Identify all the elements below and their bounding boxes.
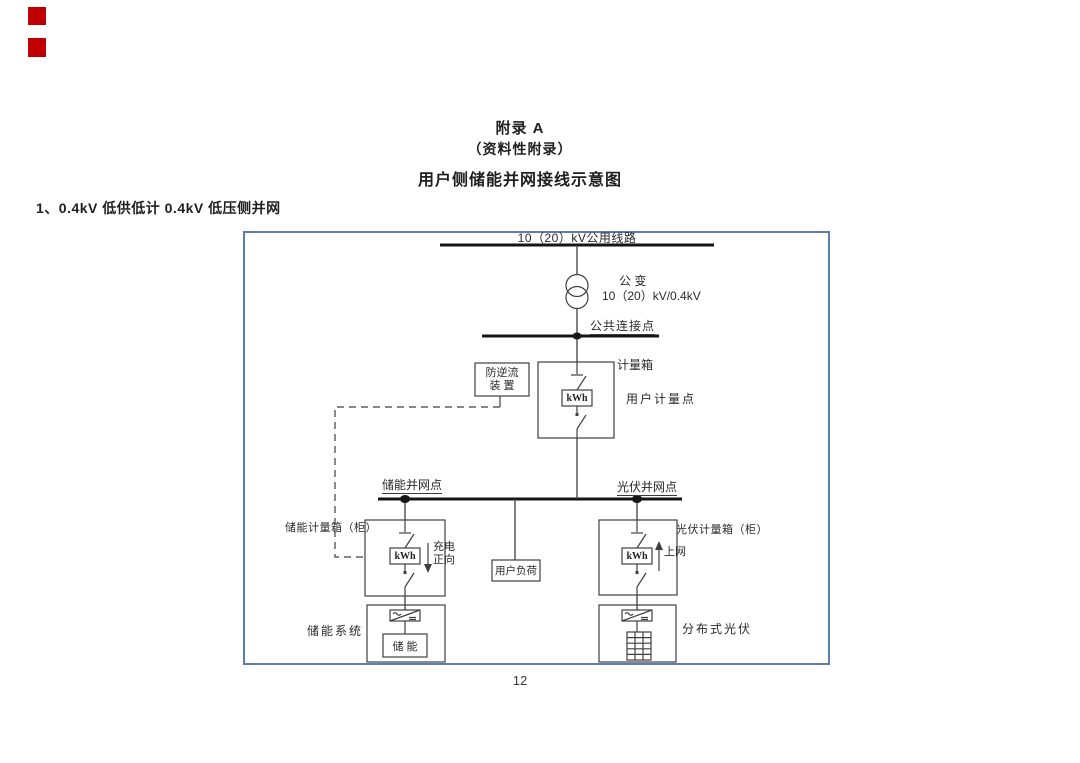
page-title: 用户侧储能并网接线示意图 xyxy=(0,166,1040,190)
top-bus-label: 10（20）kV公用线路 xyxy=(477,231,677,245)
kwh-meter-label: kWh xyxy=(562,390,592,406)
breaker-icon xyxy=(577,415,586,429)
user-load-label: 用户负荷 xyxy=(492,560,540,581)
anti-backflow-line2: 装 置 xyxy=(489,380,514,392)
breaker-icon xyxy=(637,534,646,548)
transformer-ratio-label: 10（20）kV/0.4kV xyxy=(602,289,701,303)
breaker-icon xyxy=(405,573,414,587)
breaker-icon xyxy=(405,534,414,548)
charge-dir-line2: 正向 xyxy=(433,554,455,566)
storage-poc-dot xyxy=(400,495,410,503)
inverter-icon xyxy=(622,610,652,621)
storage-system-label: 储能系统 xyxy=(307,624,363,638)
storage-unit-label: 储 能 xyxy=(383,634,427,657)
to-grid-label: 上网 xyxy=(664,545,686,559)
pv-poc-label: 光伏并网点 xyxy=(617,480,677,496)
pv-poc-dot xyxy=(632,495,642,503)
inverter-icon xyxy=(390,610,420,621)
red-marker-top xyxy=(28,7,46,25)
red-marker-bottom xyxy=(28,38,46,57)
charge-direction-label: 充电正向 xyxy=(433,541,455,567)
pv-meter-box-label: 光伏计量箱（柜） xyxy=(676,523,768,537)
wiring-diagram xyxy=(245,233,828,663)
appendix-heading: 附录 A xyxy=(0,117,1040,138)
user-meter-point-label: 用户计量点 xyxy=(626,392,696,406)
transformer-icon xyxy=(566,275,588,309)
to-grid-arrow-icon xyxy=(655,541,663,571)
breaker-icon xyxy=(637,573,646,587)
kwh-meter-label: kWh xyxy=(390,548,420,564)
diagram-frame: 10（20）kV公用线路 公 变 10（20）kV/0.4kV 公共连接点 防逆… xyxy=(243,231,830,665)
meter-box-label: 计量箱 xyxy=(617,358,653,372)
bus-lines xyxy=(378,245,714,499)
charge-dir-line1: 充电 xyxy=(433,541,455,553)
anti-backflow-line1: 防逆流 xyxy=(486,367,519,379)
storage-poc-label: 储能并网点 xyxy=(382,478,442,494)
breaker-icon xyxy=(577,376,586,390)
transformer-name-label: 公 变 xyxy=(619,274,646,288)
kwh-meter-label: kWh xyxy=(622,548,652,564)
page-number: 12 xyxy=(0,673,1040,688)
pv-panel-icon xyxy=(627,632,651,660)
charge-direction-arrow-icon xyxy=(424,543,432,573)
appendix-type: （资料性附录） xyxy=(0,139,1040,159)
section-heading: 1、0.4kV 低供低计 0.4kV 低压侧并网 xyxy=(36,198,281,218)
anti-backflow-label: 防逆流 装 置 xyxy=(475,364,529,395)
pcc-label: 公共连接点 xyxy=(590,319,655,335)
distributed-pv-label: 分布式光伏 xyxy=(682,622,752,636)
distributed-pv-box xyxy=(599,605,676,662)
pcc-junction-dot xyxy=(573,333,582,340)
storage-meter-box-label: 储能计量箱（柜） xyxy=(285,521,377,535)
